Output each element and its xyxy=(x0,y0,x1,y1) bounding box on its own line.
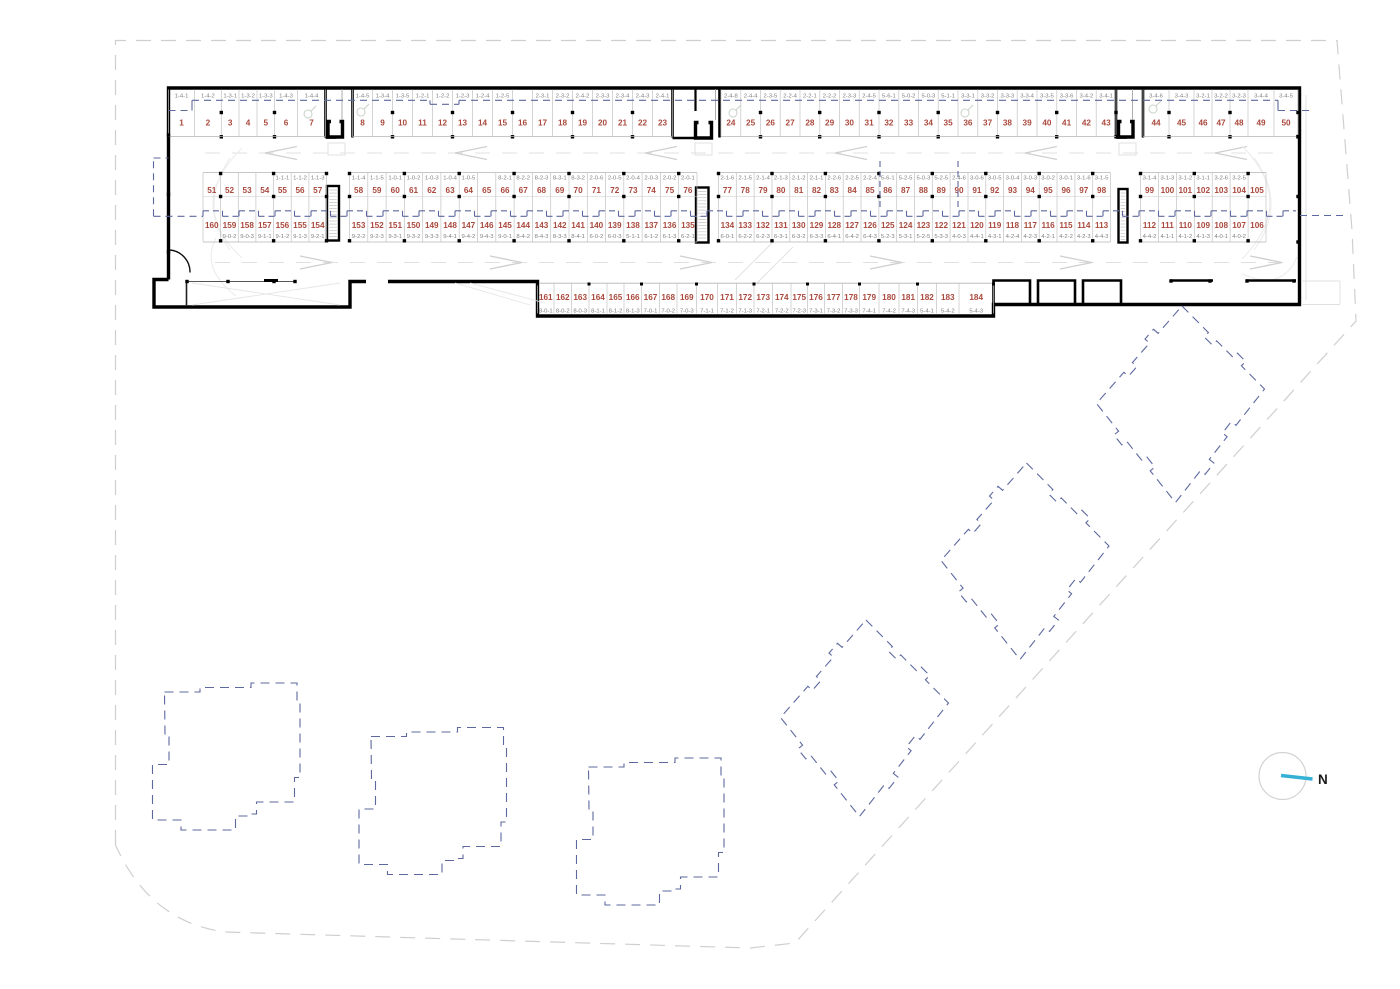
svg-text:125: 125 xyxy=(881,221,895,230)
svg-text:40: 40 xyxy=(1042,119,1052,128)
svg-text:87: 87 xyxy=(901,186,911,195)
svg-text:18: 18 xyxy=(558,119,568,128)
svg-text:3-1-3: 3-1-3 xyxy=(1161,176,1175,182)
svg-text:1-2-3: 1-2-3 xyxy=(456,94,470,100)
svg-text:3-2-2: 3-2-2 xyxy=(1214,94,1228,100)
svg-text:143: 143 xyxy=(535,221,549,230)
svg-text:28: 28 xyxy=(805,119,815,128)
svg-text:3-1-4: 3-1-4 xyxy=(1143,176,1157,182)
svg-text:8-0-3: 8-0-3 xyxy=(573,308,587,314)
svg-text:88: 88 xyxy=(919,186,929,195)
svg-text:3-3-4: 3-3-4 xyxy=(1020,94,1034,100)
svg-text:101: 101 xyxy=(1178,186,1192,195)
svg-text:10: 10 xyxy=(398,119,408,128)
svg-text:8-3-3: 8-3-3 xyxy=(553,234,567,240)
svg-text:2-0-6: 2-0-6 xyxy=(590,176,604,182)
svg-text:3: 3 xyxy=(228,119,233,128)
svg-text:6-2-2: 6-2-2 xyxy=(738,234,752,240)
svg-text:164: 164 xyxy=(591,293,605,302)
svg-text:3-4-4: 3-4-4 xyxy=(1254,94,1268,100)
svg-text:5-0-3: 5-0-3 xyxy=(922,94,936,100)
svg-text:6-3-1: 6-3-1 xyxy=(774,234,788,240)
svg-text:8-0-1: 8-0-1 xyxy=(539,308,553,314)
svg-text:97: 97 xyxy=(1079,186,1089,195)
svg-text:107: 107 xyxy=(1232,221,1246,230)
svg-text:58: 58 xyxy=(354,186,364,195)
svg-text:6-0-3: 6-0-3 xyxy=(608,234,622,240)
svg-text:7-3-2: 7-3-2 xyxy=(827,308,841,314)
svg-text:1-1-2: 1-1-2 xyxy=(293,176,307,182)
svg-text:3-0-4: 3-0-4 xyxy=(1006,176,1020,182)
svg-text:123: 123 xyxy=(917,221,931,230)
svg-text:147: 147 xyxy=(462,221,476,230)
svg-text:8-3-2: 8-3-2 xyxy=(571,176,585,182)
svg-text:80: 80 xyxy=(776,186,786,195)
svg-text:5: 5 xyxy=(264,119,269,128)
svg-text:7-2-2: 7-2-2 xyxy=(775,308,789,314)
svg-text:46: 46 xyxy=(1198,119,1208,128)
svg-text:120: 120 xyxy=(970,221,984,230)
svg-text:113: 113 xyxy=(1095,221,1109,230)
svg-text:5-1-1: 5-1-1 xyxy=(626,234,640,240)
svg-text:2-2-6: 2-2-6 xyxy=(827,176,841,182)
svg-text:60: 60 xyxy=(391,186,401,195)
svg-text:9-4-1: 9-4-1 xyxy=(443,234,457,240)
svg-text:151: 151 xyxy=(388,221,402,230)
svg-text:136: 136 xyxy=(663,221,677,230)
svg-text:3-3-3: 3-3-3 xyxy=(1001,94,1015,100)
svg-text:1-4-2: 1-4-2 xyxy=(201,94,215,100)
svg-text:21: 21 xyxy=(618,119,628,128)
svg-text:3-1-6: 3-1-6 xyxy=(1077,176,1091,182)
svg-text:2-3-2: 2-3-2 xyxy=(556,94,570,100)
svg-text:110: 110 xyxy=(1179,221,1193,230)
svg-text:48: 48 xyxy=(1234,119,1244,128)
svg-text:3-0-5: 3-0-5 xyxy=(988,176,1002,182)
svg-text:8-2-3: 8-2-3 xyxy=(535,176,549,182)
svg-text:22: 22 xyxy=(638,119,648,128)
svg-text:3-1-2: 3-1-2 xyxy=(1178,176,1192,182)
svg-text:9-3-2: 9-3-2 xyxy=(407,234,421,240)
svg-text:81: 81 xyxy=(794,186,804,195)
svg-text:142: 142 xyxy=(553,221,567,230)
svg-text:30: 30 xyxy=(845,119,855,128)
svg-text:140: 140 xyxy=(590,221,604,230)
svg-text:145: 145 xyxy=(498,221,512,230)
svg-text:2-4-3: 2-4-3 xyxy=(636,94,650,100)
svg-text:144: 144 xyxy=(516,221,530,230)
svg-text:5-0-3: 5-0-3 xyxy=(917,176,931,182)
svg-text:38: 38 xyxy=(1003,119,1013,128)
svg-text:2-4-6: 2-4-6 xyxy=(952,176,966,182)
svg-text:1-4-5: 1-4-5 xyxy=(356,94,370,100)
svg-text:8-1-3: 8-1-3 xyxy=(626,308,640,314)
svg-text:74: 74 xyxy=(647,186,657,195)
svg-text:3-4-1: 3-4-1 xyxy=(1099,94,1113,100)
svg-text:116: 116 xyxy=(1041,221,1055,230)
svg-text:129: 129 xyxy=(810,221,824,230)
svg-text:9-4-2: 9-4-2 xyxy=(462,234,476,240)
svg-text:7-0-2: 7-0-2 xyxy=(661,308,675,314)
svg-text:8: 8 xyxy=(360,119,365,128)
svg-text:35: 35 xyxy=(944,119,954,128)
svg-text:2-4-4: 2-4-4 xyxy=(744,94,758,100)
svg-text:72: 72 xyxy=(610,186,620,195)
svg-text:1: 1 xyxy=(179,119,184,128)
svg-text:1-2-1: 1-2-1 xyxy=(416,94,430,100)
svg-text:141: 141 xyxy=(571,221,585,230)
svg-text:1-3-5: 1-3-5 xyxy=(396,94,410,100)
svg-text:55: 55 xyxy=(278,186,288,195)
svg-text:124: 124 xyxy=(899,221,913,230)
svg-text:20: 20 xyxy=(598,119,608,128)
svg-text:2-4-2: 2-4-2 xyxy=(576,94,590,100)
svg-text:17: 17 xyxy=(538,119,548,128)
svg-text:4-0-3: 4-0-3 xyxy=(952,234,966,240)
svg-text:99: 99 xyxy=(1145,186,1155,195)
svg-text:152: 152 xyxy=(370,221,384,230)
svg-text:5-3-3: 5-3-3 xyxy=(934,234,948,240)
svg-text:1-1-4: 1-1-4 xyxy=(352,176,366,182)
svg-text:56: 56 xyxy=(295,186,305,195)
svg-text:89: 89 xyxy=(937,186,947,195)
svg-text:5-6-1: 5-6-1 xyxy=(881,176,895,182)
svg-text:65: 65 xyxy=(482,186,492,195)
svg-text:127: 127 xyxy=(845,221,859,230)
svg-text:4-0-1: 4-0-1 xyxy=(1214,234,1228,240)
svg-text:5-4-1: 5-4-1 xyxy=(920,308,934,314)
svg-text:27: 27 xyxy=(786,119,796,128)
svg-text:1-2-5: 1-2-5 xyxy=(496,94,510,100)
svg-text:54: 54 xyxy=(260,186,270,195)
svg-text:79: 79 xyxy=(758,186,768,195)
svg-text:6-2-1: 6-2-1 xyxy=(681,234,695,240)
svg-text:57: 57 xyxy=(313,186,323,195)
svg-text:9-0-3: 9-0-3 xyxy=(240,234,254,240)
svg-text:41: 41 xyxy=(1062,119,1072,128)
svg-text:4-2-4: 4-2-4 xyxy=(1006,234,1020,240)
svg-text:25: 25 xyxy=(746,119,756,128)
svg-text:169: 169 xyxy=(680,293,694,302)
svg-text:98: 98 xyxy=(1097,186,1107,195)
svg-text:1-1-1: 1-1-1 xyxy=(276,176,290,182)
svg-text:174: 174 xyxy=(775,293,789,302)
svg-text:36: 36 xyxy=(963,119,973,128)
svg-text:4-1-1: 4-1-1 xyxy=(1161,234,1175,240)
svg-text:167: 167 xyxy=(644,293,658,302)
svg-text:102: 102 xyxy=(1196,186,1210,195)
svg-text:6-0-2: 6-0-2 xyxy=(590,234,604,240)
svg-text:93: 93 xyxy=(1008,186,1018,195)
svg-text:180: 180 xyxy=(882,293,896,302)
svg-text:69: 69 xyxy=(555,186,565,195)
svg-text:149: 149 xyxy=(425,221,439,230)
svg-text:1-3-3: 1-3-3 xyxy=(259,94,273,100)
svg-text:32: 32 xyxy=(884,119,894,128)
svg-text:91: 91 xyxy=(972,186,982,195)
svg-text:138: 138 xyxy=(626,221,640,230)
svg-text:161: 161 xyxy=(539,293,553,302)
svg-text:14: 14 xyxy=(478,119,488,128)
svg-text:2-3-1: 2-3-1 xyxy=(536,94,550,100)
svg-text:9-3-1: 9-3-1 xyxy=(388,234,402,240)
svg-text:5-4-3: 5-4-3 xyxy=(969,308,983,314)
svg-text:2-3-3: 2-3-3 xyxy=(596,94,610,100)
svg-text:175: 175 xyxy=(792,293,806,302)
svg-text:7-1-3: 7-1-3 xyxy=(738,308,752,314)
svg-text:9-3-3: 9-3-3 xyxy=(425,234,439,240)
svg-text:2-3-4: 2-3-4 xyxy=(616,94,630,100)
svg-text:67: 67 xyxy=(519,186,529,195)
svg-text:153: 153 xyxy=(352,221,366,230)
svg-text:184: 184 xyxy=(969,293,983,302)
svg-text:31: 31 xyxy=(865,119,875,128)
svg-text:135: 135 xyxy=(681,221,695,230)
svg-text:11: 11 xyxy=(418,119,427,128)
svg-text:61: 61 xyxy=(409,186,419,195)
svg-text:3-3-1: 3-3-1 xyxy=(961,94,975,100)
svg-text:8-4-1: 8-4-1 xyxy=(571,234,585,240)
svg-text:3-0-2: 3-0-2 xyxy=(1041,176,1055,182)
svg-text:177: 177 xyxy=(827,293,841,302)
svg-text:7-2-1: 7-2-1 xyxy=(756,308,770,314)
svg-text:59: 59 xyxy=(372,186,382,195)
svg-text:62: 62 xyxy=(427,186,437,195)
svg-text:117: 117 xyxy=(1024,221,1038,230)
svg-text:170: 170 xyxy=(700,293,714,302)
svg-text:8-4-2: 8-4-2 xyxy=(516,234,530,240)
svg-text:9-2-3: 9-2-3 xyxy=(370,234,384,240)
svg-text:100: 100 xyxy=(1161,186,1175,195)
svg-text:154: 154 xyxy=(311,221,325,230)
svg-text:73: 73 xyxy=(628,186,638,195)
svg-text:2-0-1: 2-0-1 xyxy=(681,176,695,182)
svg-text:133: 133 xyxy=(738,221,752,230)
svg-text:50: 50 xyxy=(1281,119,1291,128)
svg-text:4-2-3: 4-2-3 xyxy=(1023,234,1037,240)
svg-text:7-1-1: 7-1-1 xyxy=(700,308,714,314)
svg-text:8-4-3: 8-4-3 xyxy=(535,234,549,240)
svg-text:64: 64 xyxy=(464,186,474,195)
svg-text:63: 63 xyxy=(446,186,456,195)
svg-text:173: 173 xyxy=(756,293,770,302)
svg-text:7-3-3: 7-3-3 xyxy=(844,308,858,314)
svg-text:172: 172 xyxy=(738,293,752,302)
svg-text:150: 150 xyxy=(407,221,421,230)
svg-text:13: 13 xyxy=(458,119,468,128)
svg-text:7-2-3: 7-2-3 xyxy=(792,308,806,314)
svg-text:51: 51 xyxy=(207,186,217,195)
svg-text:2-4-8: 2-4-8 xyxy=(724,94,738,100)
svg-text:183: 183 xyxy=(941,293,955,302)
svg-text:2-2-5: 2-2-5 xyxy=(845,176,859,182)
svg-text:16: 16 xyxy=(518,119,528,128)
svg-text:156: 156 xyxy=(276,221,290,230)
svg-text:4-2-3: 4-2-3 xyxy=(1077,234,1091,240)
svg-text:7-4-3: 7-4-3 xyxy=(901,308,915,314)
svg-text:43: 43 xyxy=(1102,119,1112,128)
svg-text:53: 53 xyxy=(243,186,253,195)
svg-text:3-3-6: 3-3-6 xyxy=(1060,94,1074,100)
svg-text:68: 68 xyxy=(537,186,547,195)
svg-text:2-1-6: 2-1-6 xyxy=(721,176,735,182)
svg-text:3-1-5: 3-1-5 xyxy=(1095,176,1109,182)
svg-text:1-3-2: 1-3-2 xyxy=(241,94,255,100)
svg-text:131: 131 xyxy=(774,221,788,230)
svg-text:6-2-3: 6-2-3 xyxy=(756,234,770,240)
svg-text:155: 155 xyxy=(293,221,307,230)
svg-text:2-0-5: 2-0-5 xyxy=(608,176,622,182)
svg-text:162: 162 xyxy=(556,293,570,302)
svg-text:3-4-5: 3-4-5 xyxy=(1279,94,1293,100)
svg-text:7-4-2: 7-4-2 xyxy=(882,308,896,314)
svg-text:1-4-4: 1-4-4 xyxy=(305,94,319,100)
svg-text:8-0-2: 8-0-2 xyxy=(556,308,570,314)
svg-text:90: 90 xyxy=(954,186,964,195)
svg-text:4-0-2: 4-0-2 xyxy=(1232,234,1246,240)
svg-text:3-4-2: 3-4-2 xyxy=(1080,94,1094,100)
svg-text:29: 29 xyxy=(825,119,835,128)
svg-text:9-4-3: 9-4-3 xyxy=(480,234,494,240)
svg-text:7-3-1: 7-3-1 xyxy=(809,308,823,314)
svg-text:6-4-3: 6-4-3 xyxy=(863,234,877,240)
svg-text:114: 114 xyxy=(1077,221,1091,230)
svg-text:2-0-4: 2-0-4 xyxy=(626,176,640,182)
svg-text:163: 163 xyxy=(573,293,587,302)
svg-text:9: 9 xyxy=(380,119,385,128)
svg-text:4-1-2: 4-1-2 xyxy=(1178,234,1192,240)
svg-text:4-3-1: 4-3-1 xyxy=(988,234,1002,240)
svg-text:1-0-1: 1-0-1 xyxy=(388,176,402,182)
svg-text:7-4-1: 7-4-1 xyxy=(862,308,876,314)
svg-text:52: 52 xyxy=(225,186,235,195)
svg-text:2-1-3: 2-1-3 xyxy=(774,176,788,182)
svg-text:6-3-2: 6-3-2 xyxy=(792,234,806,240)
svg-text:1-1-3: 1-1-3 xyxy=(311,176,325,182)
svg-text:96: 96 xyxy=(1061,186,1071,195)
svg-text:9-2-2: 9-2-2 xyxy=(352,234,366,240)
svg-text:2-2-2: 2-2-2 xyxy=(823,94,837,100)
svg-text:1-4-1: 1-4-1 xyxy=(175,94,189,100)
svg-text:4: 4 xyxy=(246,119,251,128)
svg-text:9-2-1: 9-2-1 xyxy=(311,234,325,240)
svg-text:2-2-1: 2-2-1 xyxy=(803,94,817,100)
svg-text:139: 139 xyxy=(608,221,622,230)
svg-text:8-3-1: 8-3-1 xyxy=(553,176,567,182)
svg-text:4-2-2: 4-2-2 xyxy=(1059,234,1073,240)
svg-text:179: 179 xyxy=(862,293,876,302)
svg-text:108: 108 xyxy=(1214,221,1228,230)
svg-text:9-0-2: 9-0-2 xyxy=(223,234,237,240)
svg-text:132: 132 xyxy=(756,221,770,230)
svg-text:176: 176 xyxy=(809,293,823,302)
svg-text:23: 23 xyxy=(658,119,668,128)
svg-text:106: 106 xyxy=(1250,221,1264,230)
svg-text:3-2-1: 3-2-1 xyxy=(1196,94,1210,100)
svg-text:178: 178 xyxy=(844,293,858,302)
svg-text:N: N xyxy=(1318,772,1328,787)
svg-text:9-1-2: 9-1-2 xyxy=(276,234,290,240)
svg-text:5-2-3: 5-2-3 xyxy=(881,234,895,240)
svg-text:115: 115 xyxy=(1059,221,1073,230)
svg-text:8-1-1: 8-1-1 xyxy=(591,308,605,314)
svg-text:158: 158 xyxy=(240,221,254,230)
svg-text:112: 112 xyxy=(1143,221,1157,230)
svg-text:26: 26 xyxy=(766,119,776,128)
svg-text:4-4-2: 4-4-2 xyxy=(1143,234,1157,240)
svg-text:86: 86 xyxy=(883,186,893,195)
svg-text:7: 7 xyxy=(309,119,314,128)
svg-text:42: 42 xyxy=(1082,119,1092,128)
svg-text:157: 157 xyxy=(258,221,272,230)
svg-text:5-1-1: 5-1-1 xyxy=(941,94,955,100)
svg-text:49: 49 xyxy=(1256,119,1266,128)
svg-text:1-0-5: 1-0-5 xyxy=(462,176,476,182)
svg-text:1-3-1: 1-3-1 xyxy=(223,94,237,100)
svg-text:2-0-2: 2-0-2 xyxy=(663,176,677,182)
svg-text:3-0-1: 3-0-1 xyxy=(1059,176,1073,182)
svg-text:75: 75 xyxy=(665,186,675,195)
svg-text:159: 159 xyxy=(223,221,237,230)
svg-text:6-3-3: 6-3-3 xyxy=(810,234,824,240)
svg-text:4-4-1: 4-4-1 xyxy=(970,234,984,240)
svg-text:95: 95 xyxy=(1044,186,1054,195)
svg-text:146: 146 xyxy=(480,221,494,230)
svg-text:3-4-6: 3-4-6 xyxy=(1149,94,1163,100)
svg-text:3-1-1: 3-1-1 xyxy=(1196,176,1210,182)
svg-text:119: 119 xyxy=(988,221,1002,230)
svg-text:6-4-2: 6-4-2 xyxy=(845,234,859,240)
svg-text:5-2-5: 5-2-5 xyxy=(934,176,948,182)
svg-text:44: 44 xyxy=(1151,119,1161,128)
svg-text:5-4-2: 5-4-2 xyxy=(941,308,955,314)
svg-text:2-3-3: 2-3-3 xyxy=(843,94,857,100)
svg-text:76: 76 xyxy=(683,186,693,195)
svg-text:1-0-3: 1-0-3 xyxy=(425,176,439,182)
svg-text:15: 15 xyxy=(498,119,508,128)
svg-text:47: 47 xyxy=(1216,119,1226,128)
svg-text:171: 171 xyxy=(720,293,734,302)
svg-text:103: 103 xyxy=(1214,186,1228,195)
svg-text:137: 137 xyxy=(644,221,658,230)
svg-text:6: 6 xyxy=(284,119,289,128)
svg-text:83: 83 xyxy=(830,186,840,195)
svg-text:3-2-6: 3-2-6 xyxy=(1214,176,1228,182)
svg-text:1-2-2: 1-2-2 xyxy=(436,94,450,100)
svg-text:2-1-1: 2-1-1 xyxy=(810,176,824,182)
svg-text:82: 82 xyxy=(812,186,822,195)
svg-text:109: 109 xyxy=(1196,221,1210,230)
svg-text:128: 128 xyxy=(827,221,841,230)
svg-text:4-2-1: 4-2-1 xyxy=(1041,234,1055,240)
svg-text:9-1-1: 9-1-1 xyxy=(258,234,272,240)
svg-text:111: 111 xyxy=(1161,221,1174,230)
svg-text:9-1-3: 9-1-3 xyxy=(293,234,307,240)
svg-text:2-4-5: 2-4-5 xyxy=(862,94,876,100)
svg-text:3-2-5: 3-2-5 xyxy=(1232,176,1246,182)
svg-text:182: 182 xyxy=(920,293,934,302)
svg-text:9-0-1: 9-0-1 xyxy=(498,234,512,240)
svg-text:71: 71 xyxy=(592,186,602,195)
svg-text:33: 33 xyxy=(904,119,914,128)
svg-text:104: 104 xyxy=(1232,186,1246,195)
svg-text:2-2-4: 2-2-4 xyxy=(863,176,877,182)
svg-text:122: 122 xyxy=(934,221,948,230)
svg-text:6-0-1: 6-0-1 xyxy=(721,234,735,240)
svg-text:7-1-2: 7-1-2 xyxy=(720,308,734,314)
svg-text:181: 181 xyxy=(901,293,915,302)
svg-text:1-1-5: 1-1-5 xyxy=(370,176,384,182)
